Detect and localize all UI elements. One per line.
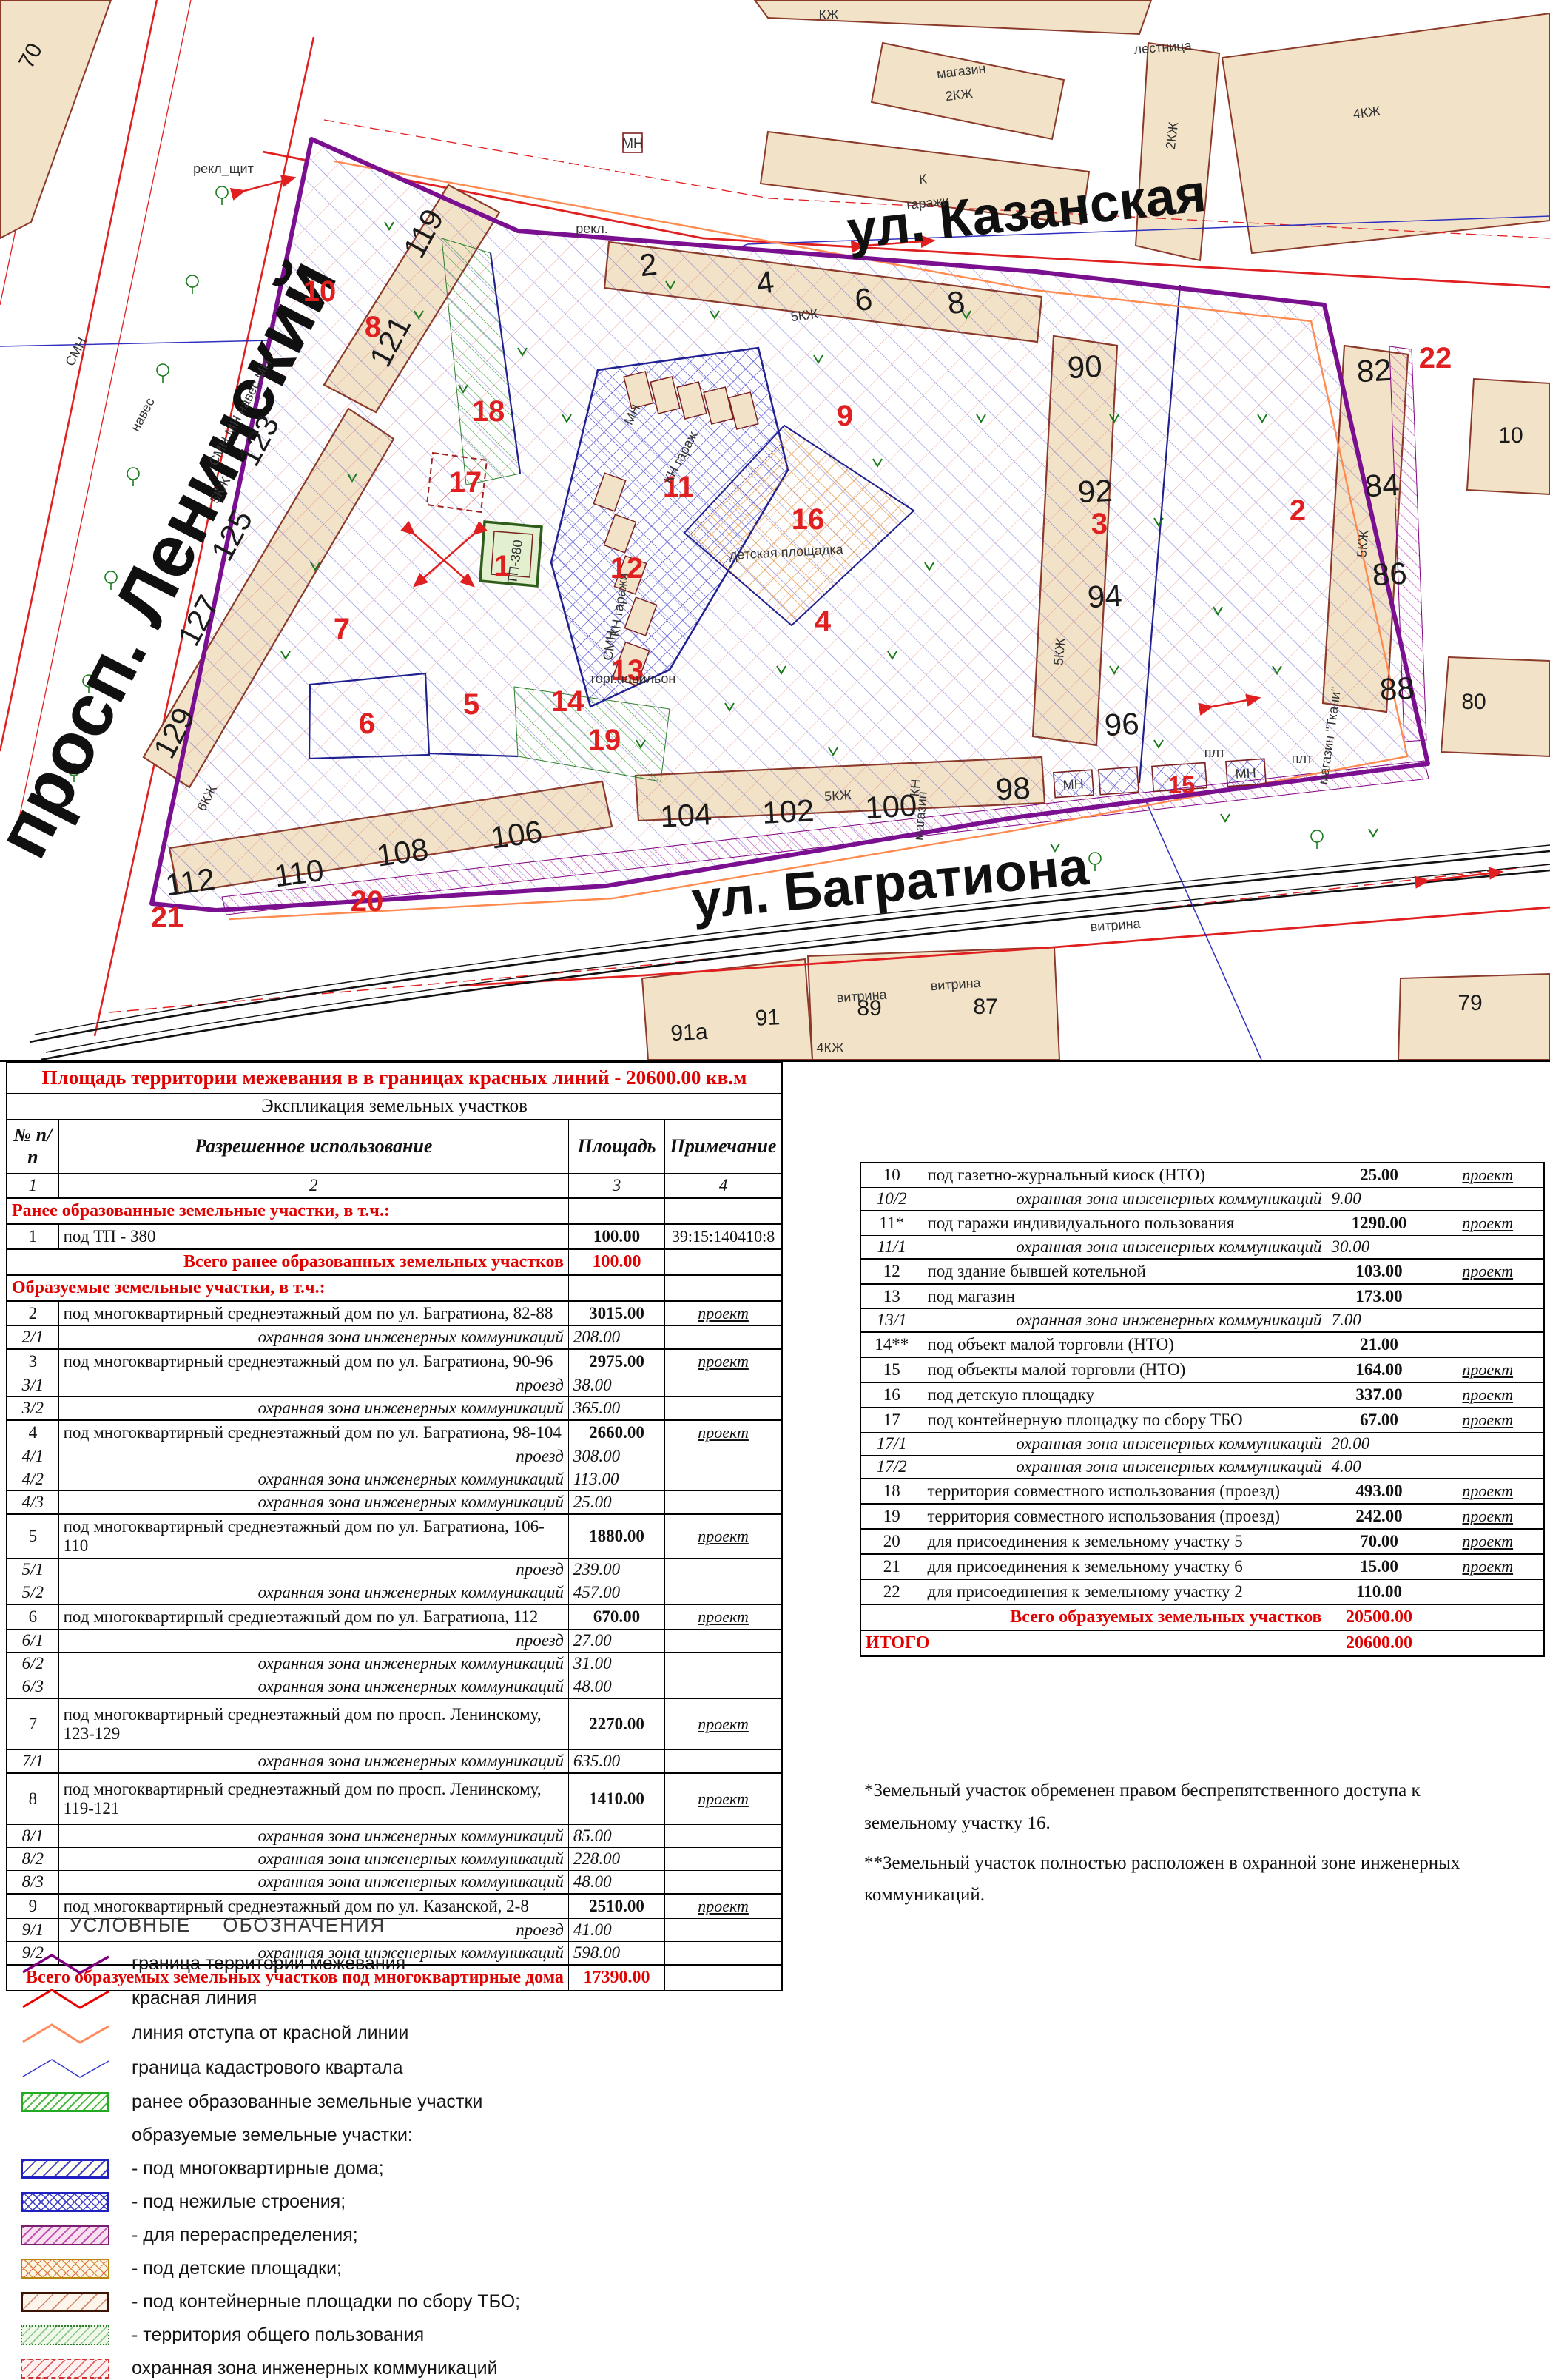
table-row: 19территория совместного использования (… <box>860 1504 1544 1529</box>
table-cell: проезд <box>58 1374 568 1397</box>
table-cell <box>665 1942 782 1966</box>
table-cell: 21 <box>860 1554 923 1579</box>
building-number: 92 <box>1077 473 1113 509</box>
annotation-label: торг.павильон <box>590 671 676 686</box>
table-row: 13/1охранная зона инженерных коммуникаци… <box>860 1309 1544 1333</box>
table-row: 10/2охранная зона инженерных коммуникаци… <box>860 1188 1544 1211</box>
table-cell: проект <box>1432 1259 1544 1284</box>
table-cell: 493.00 <box>1327 1479 1432 1504</box>
table-cell: 1410.00 <box>568 1773 664 1825</box>
table-cell: 10 <box>860 1163 923 1188</box>
table-row: 10под газетно-журнальный киоск (НТО)25.0… <box>860 1163 1544 1188</box>
table-cell: 20.00 <box>1327 1433 1432 1456</box>
table-cell: 20 <box>860 1529 923 1554</box>
table-cell: 19 <box>860 1504 923 1529</box>
table-cell: 38.00 <box>568 1374 664 1397</box>
table-cell <box>665 1653 782 1675</box>
legend-item: охранная зона инженерных коммуникаций <box>21 2356 627 2380</box>
table-cell <box>665 1249 782 1275</box>
parcel-number: 8 <box>365 311 381 343</box>
table-cell: 100.00 <box>568 1224 664 1249</box>
table-cell: охранная зона инженерных коммуникаций <box>58 1750 568 1774</box>
table-cell <box>1432 1332 1544 1357</box>
table-row: 12под здание бывшей котельной103.00проек… <box>860 1259 1544 1284</box>
table-row: 4/3охранная зона инженерных коммуникаций… <box>7 1491 782 1515</box>
table-cell: 11* <box>860 1211 923 1236</box>
table-cell <box>1432 1309 1544 1333</box>
survey-plan-page: { "map": { "streets": { "leninsky": "про… <box>0 0 1550 2380</box>
table-cell: проект <box>665 1420 782 1445</box>
building-number: 84 <box>1364 467 1401 503</box>
table-row: 3/2охранная зона инженерных коммуникаций… <box>7 1397 782 1421</box>
table-cell <box>665 1825 782 1848</box>
footnote: *Земельный участок обременен правом бесп… <box>864 1775 1515 1840</box>
building-number: 91а <box>670 1020 709 1046</box>
parcel-number: 15 <box>1168 771 1196 799</box>
legend-label: - для перераспределения; <box>132 2225 358 2246</box>
annotation-label: СМН <box>62 335 90 368</box>
table-cell: проект <box>1432 1504 1544 1529</box>
table-cell: проект <box>665 1604 782 1630</box>
legend-swatch-commons <box>21 2325 109 2345</box>
parcel-number: 7 <box>334 613 350 645</box>
cadastral-map-svg: просп. Ленинский ул. Казанская ул. Багра… <box>0 0 1550 1060</box>
table-cell: проезд <box>58 1559 568 1581</box>
legend-swatch-nonresidential <box>21 2192 109 2212</box>
table-cell: 2270.00 <box>568 1698 664 1750</box>
parcel-number: 5 <box>463 688 479 721</box>
zigzag-line <box>23 1955 109 1973</box>
legend-item: граница кадастрового квартала <box>21 2054 627 2081</box>
legend: УСЛОВНЫЕ ОБОЗНАЧЕНИЯ граница территории … <box>21 1914 627 2380</box>
table-cell: 8/3 <box>7 1871 58 1895</box>
legend-label: - под контейнерные площадки по сбору ТБО… <box>132 2291 520 2313</box>
table-cell: 4/2 <box>7 1468 58 1491</box>
building-number: 94 <box>1087 578 1123 614</box>
parcel-number: 3 <box>1091 508 1108 540</box>
table-cell: проект <box>1432 1529 1544 1554</box>
table-cell: охранная зона инженерных коммуникаций <box>923 1309 1327 1333</box>
table-row: 2под многоквартирный среднеэтажный дом п… <box>7 1301 782 1326</box>
cadastral-map: просп. Ленинский ул. Казанская ул. Багра… <box>0 0 1550 1062</box>
table-cell: под объекты малой торговли (НТО) <box>923 1357 1327 1382</box>
building-number: 98 <box>995 770 1031 807</box>
table-row: 22для присоединения к земельному участку… <box>860 1579 1544 1604</box>
table-cell: 8/1 <box>7 1825 58 1848</box>
table-cell: 7/1 <box>7 1750 58 1774</box>
building-number: 112 <box>164 861 218 903</box>
annotation-label: 5КЖ <box>824 787 852 804</box>
table-cell: 239.00 <box>568 1559 664 1581</box>
table-cell: 4 <box>7 1420 58 1445</box>
table-cell: 3 <box>7 1349 58 1374</box>
table-cell: 457.00 <box>568 1581 664 1605</box>
annotation-label: плт <box>1292 751 1313 766</box>
table-row: 8/1охранная зона инженерных коммуникаций… <box>7 1825 782 1848</box>
table-cell: охранная зона инженерных коммуникаций <box>923 1188 1327 1211</box>
table-row: 7под многоквартирный среднеэтажный дом п… <box>7 1698 782 1750</box>
annotation-label: МН <box>1235 765 1256 781</box>
zigzag-line <box>23 2025 109 2043</box>
table-cell: для присоединения к земельному участку 2 <box>923 1579 1327 1604</box>
parcel-number: 17 <box>449 466 482 499</box>
legend-item: - под нежилые строения; <box>21 2189 627 2214</box>
table-cell <box>568 1198 664 1224</box>
table-cell <box>1432 1456 1544 1479</box>
legend-label: - под нежилые строения; <box>132 2191 346 2213</box>
right-table-body: 10под газетно-журнальный киоск (НТО)25.0… <box>860 1163 1544 1656</box>
table-cell <box>665 1848 782 1871</box>
table-row: 4/1проезд308.00 <box>7 1445 782 1468</box>
table-title: Площадь территории межевания в в граница… <box>7 1062 782 1094</box>
table-cell: охранная зона инженерных коммуникаций <box>58 1581 568 1605</box>
table-cell: 25.00 <box>568 1491 664 1515</box>
table-cell <box>1432 1604 1544 1630</box>
table-row: 4под многоквартирный среднеэтажный дом п… <box>7 1420 782 1445</box>
table-cell: 9.00 <box>1327 1188 1432 1211</box>
column-number: 1 <box>7 1174 58 1199</box>
table-cell: 67.00 <box>1327 1408 1432 1433</box>
table-row: 7/1охранная зона инженерных коммуникаций… <box>7 1750 782 1774</box>
annotation-label: 4КЖ <box>816 1041 843 1055</box>
table-cell: под многоквартирный среднеэтажный дом по… <box>58 1698 568 1750</box>
table-cell <box>665 1559 782 1581</box>
table-row: 15под объекты малой торговли (НТО)164.00… <box>860 1357 1544 1382</box>
annotation-label: 5КЖ <box>1051 637 1068 666</box>
table-cell: охранная зона инженерных коммуникаций <box>58 1675 568 1699</box>
table-cell: проект <box>665 1894 782 1919</box>
table-cell: проект <box>1432 1408 1544 1433</box>
building-number: 88 <box>1379 670 1415 707</box>
building-number: 106 <box>488 813 545 855</box>
table-row: 11*под гаражи индивидуального пользовани… <box>860 1211 1544 1236</box>
table-cell: 17/2 <box>860 1456 923 1479</box>
table-cell: проезд <box>58 1630 568 1653</box>
table-cell: под многоквартирный среднеэтажный дом по… <box>58 1420 568 1445</box>
parcel-number: 22 <box>1419 342 1452 374</box>
table-cell: 20600.00 <box>1327 1630 1432 1656</box>
table-cell: 8/2 <box>7 1848 58 1871</box>
legend-swatch-utility-zone <box>21 2359 109 2379</box>
table-cell: 337.00 <box>1327 1382 1432 1408</box>
annotation-label: рекл_щит <box>193 161 254 177</box>
table-cell: под здание бывшей котельной <box>923 1259 1327 1284</box>
table-cell: 5 <box>7 1514 58 1559</box>
legend-swatch-playground <box>21 2259 109 2279</box>
table-header-row: № п/п Разрешенное использование Площадь … <box>7 1120 782 1174</box>
table-row: 16под детскую площадку337.00проект <box>860 1382 1544 1408</box>
table-cell <box>665 1919 782 1942</box>
table-cell: 48.00 <box>568 1675 664 1699</box>
legend-label: ранее образованные земельные участки <box>132 2091 482 2113</box>
table-cell <box>665 1275 782 1301</box>
table-cell: 12 <box>860 1259 923 1284</box>
table-row: 8под многоквартирный среднеэтажный дом п… <box>7 1773 782 1825</box>
table-cell: 365.00 <box>568 1397 664 1421</box>
zigzag-line <box>23 2060 109 2077</box>
table-cell <box>1432 1284 1544 1309</box>
table-row: 17/2охранная зона инженерных коммуникаци… <box>860 1456 1544 1479</box>
table-cell: проект <box>1432 1163 1544 1188</box>
table-row: Образуемые земельные участки, в т.ч.: <box>7 1275 782 1301</box>
table-cell: проект <box>665 1514 782 1559</box>
parcel-number: 9 <box>837 400 853 432</box>
table-cell: 208.00 <box>568 1326 664 1350</box>
table-cell: проект <box>665 1698 782 1750</box>
table-subtitle: Экспликация земельных участков <box>7 1094 782 1120</box>
building-number: 90 <box>1067 349 1103 385</box>
annotation-label: плт <box>1204 745 1226 760</box>
table-cell <box>1432 1188 1544 1211</box>
table-row: 2/1охранная зона инженерных коммуникаций… <box>7 1326 782 1350</box>
legend-item: - под контейнерные площадки по сбору ТБО… <box>21 2289 627 2314</box>
table-cell: под гаражи индивидуального пользования <box>923 1211 1327 1236</box>
table-cell: под контейнерную площадку по сбору ТБО <box>923 1408 1327 1433</box>
table-cell <box>665 1965 782 1991</box>
table-cell: Всего образуемых земельных участков <box>860 1604 1327 1630</box>
table-cell: 4/1 <box>7 1445 58 1468</box>
table-cell: охранная зона инженерных коммуникаций <box>923 1456 1327 1479</box>
legend-swatch-redline-zigzag <box>21 1985 132 2011</box>
building-number: 104 <box>659 796 712 834</box>
table-cell <box>665 1750 782 1774</box>
table-cell <box>1432 1236 1544 1260</box>
table-cell: 1880.00 <box>568 1514 664 1559</box>
table-row: 6под многоквартирный среднеэтажный дом п… <box>7 1604 782 1630</box>
table-cell: Ранее образованные земельные участки, в … <box>7 1198 568 1224</box>
table-cell: 1290.00 <box>1327 1211 1432 1236</box>
table-cell: 48.00 <box>568 1871 664 1895</box>
table-cell: 21.00 <box>1327 1332 1432 1357</box>
table-cell: проект <box>1432 1554 1544 1579</box>
table-cell: 228.00 <box>568 1848 664 1871</box>
table-cell: под ТП - 380 <box>58 1224 568 1249</box>
legend-label: линия отступа от красной линии <box>132 2023 408 2044</box>
annotation-label: 5КЖ <box>1354 529 1371 558</box>
building-number: 108 <box>374 831 431 873</box>
table-cell: 164.00 <box>1327 1357 1432 1382</box>
legend-item: граница территории межевания <box>21 1950 627 1977</box>
legend-swatch-apartment <box>21 2159 109 2179</box>
building-number: 110 <box>272 853 326 894</box>
legend-label: образуемые земельные участки: <box>132 2125 413 2146</box>
table-cell: 635.00 <box>568 1750 664 1774</box>
building-number: 96 <box>1104 706 1140 742</box>
parcel-number: 10 <box>303 275 337 308</box>
table-row: 21для присоединения к земельному участку… <box>860 1554 1544 1579</box>
building-number: 80 <box>1461 690 1486 714</box>
zigzag-line <box>23 1990 109 2008</box>
legend-item: - под многоквартирные дома; <box>21 2156 627 2181</box>
table-cell: 100.00 <box>568 1249 664 1275</box>
table-cell: территория совместного использования (пр… <box>923 1479 1327 1504</box>
table-cell <box>568 1275 664 1301</box>
table-row: 5/2охранная зона инженерных коммуникаций… <box>7 1581 782 1605</box>
table-row: Всего ранее образованных земельных участ… <box>7 1249 782 1275</box>
table-cell: 17 <box>860 1408 923 1433</box>
table-row: 20для присоединения к земельному участку… <box>860 1529 1544 1554</box>
table-cell: 20500.00 <box>1327 1604 1432 1630</box>
legend-label: - под многоквартирные дома; <box>132 2158 384 2179</box>
column-header: Разрешенное использование <box>58 1120 568 1174</box>
table-cell <box>1432 1630 1544 1656</box>
table-cell: проект <box>1432 1211 1544 1236</box>
table-row: 11/1охранная зона инженерных коммуникаци… <box>860 1236 1544 1260</box>
table-cell: 6/2 <box>7 1653 58 1675</box>
table-cell: 70.00 <box>1327 1529 1432 1554</box>
legend-swatch-waste-site <box>21 2292 109 2312</box>
building-number: 91 <box>755 1005 781 1031</box>
table-cell: охранная зона инженерных коммуникаций <box>58 1397 568 1421</box>
table-cell: 2660.00 <box>568 1420 664 1445</box>
building-number: 102 <box>761 793 815 830</box>
table-cell <box>665 1445 782 1468</box>
parcel-number: 6 <box>359 707 375 740</box>
legend-title: УСЛОВНЫЕ ОБОЗНАЧЕНИЯ <box>70 1914 627 1937</box>
table-cell <box>1432 1433 1544 1456</box>
table-cell: Всего ранее образованных земельных участ… <box>7 1249 568 1275</box>
table-cell: под многоквартирный среднеэтажный дом по… <box>58 1301 568 1326</box>
explication-table: Площадь территории межевания в в граница… <box>6 1061 783 1991</box>
table-cell: ИТОГО <box>860 1630 1327 1656</box>
footnotes: *Земельный участок обременен правом бесп… <box>864 1775 1515 1919</box>
table-cell: 25.00 <box>1327 1163 1432 1188</box>
table-cell: 13 <box>860 1284 923 1309</box>
table-cell: проект <box>665 1301 782 1326</box>
table-cell: 308.00 <box>568 1445 664 1468</box>
parcel-number: 20 <box>351 885 384 918</box>
table-row: ИТОГО20600.00 <box>860 1630 1544 1656</box>
table-cell <box>665 1374 782 1397</box>
building-number: 79 <box>1458 991 1482 1015</box>
table-cell <box>1432 1579 1544 1604</box>
legend-label: граница кадастрового квартала <box>132 2057 403 2079</box>
legend-label: охранная зона инженерных коммуникаций <box>132 2358 498 2379</box>
table-cell: 30.00 <box>1327 1236 1432 1260</box>
table-cell: охранная зона инженерных коммуникаций <box>923 1236 1327 1260</box>
table-cell: 10/2 <box>860 1188 923 1211</box>
table-cell: 7.00 <box>1327 1309 1432 1333</box>
table-cell: 15.00 <box>1327 1554 1432 1579</box>
column-header: Площадь <box>568 1120 664 1174</box>
table-cell: 173.00 <box>1327 1284 1432 1309</box>
parcel-number: 14 <box>551 685 584 718</box>
table-row: Всего образуемых земельных участков20500… <box>860 1604 1544 1630</box>
footnote: **Земельный участок полностью расположен… <box>864 1847 1515 1912</box>
legend-swatch-redistribution <box>21 2225 109 2245</box>
building-number: 86 <box>1372 556 1408 592</box>
parcel-number: 4 <box>815 605 832 638</box>
legend-swatch-cadastre-zigzag <box>21 2054 132 2081</box>
legend-item: красная линия <box>21 1985 627 2011</box>
table-cell: проект <box>665 1773 782 1825</box>
table-cell: под многоквартирный среднеэтажный дом по… <box>58 1773 568 1825</box>
table-cell <box>665 1198 782 1224</box>
parcel-number: 16 <box>792 503 825 536</box>
legend-item: - для перераспределения; <box>21 2222 627 2248</box>
table-cell: охранная зона инженерных коммуникаций <box>58 1326 568 1350</box>
table-row: 6/3охранная зона инженерных коммуникаций… <box>7 1675 782 1699</box>
table-cell: 8 <box>7 1773 58 1825</box>
table-subtitle-row: Экспликация земельных участков <box>7 1094 782 1120</box>
parcel-number: 21 <box>151 901 184 934</box>
legend-swatch-prior-parcels <box>21 2092 109 2112</box>
table-cell <box>665 1326 782 1350</box>
table-row: 13под магазин173.00 <box>860 1284 1544 1309</box>
table-cell: 85.00 <box>568 1825 664 1848</box>
table-cell: Образуемые земельные участки, в т.ч.: <box>7 1275 568 1301</box>
legend-item: образуемые земельные участки: <box>21 2122 627 2148</box>
table-cell: 16 <box>860 1382 923 1408</box>
table-row: 3под многоквартирный среднеэтажный дом п… <box>7 1349 782 1374</box>
table-row: 6/1проезд27.00 <box>7 1630 782 1653</box>
table-cell: 39:15:140410:8 <box>665 1224 782 1249</box>
table-cell: 17/1 <box>860 1433 923 1456</box>
table-cell: 27.00 <box>568 1630 664 1653</box>
table-cell: под многоквартирный среднеэтажный дом по… <box>58 1514 568 1559</box>
table-cell: 2975.00 <box>568 1349 664 1374</box>
table-cell <box>665 1468 782 1491</box>
parcel-number: 2 <box>1290 494 1306 527</box>
legend-item: линия отступа от красной линии <box>21 2020 627 2046</box>
parcel-number: 18 <box>472 395 505 428</box>
table-cell: 110.00 <box>1327 1579 1432 1604</box>
table-cell: 5/2 <box>7 1581 58 1605</box>
legend-item: ранее образованные земельные участки <box>21 2089 627 2114</box>
table-row: 8/2охранная зона инженерных коммуникаций… <box>7 1848 782 1871</box>
table-cell: 2 <box>7 1301 58 1326</box>
table-cell: 2/1 <box>7 1326 58 1350</box>
column-number: 4 <box>665 1174 782 1199</box>
table-cell: под магазин <box>923 1284 1327 1309</box>
column-header: № п/п <box>7 1120 58 1174</box>
explication-table-continued: 10под газетно-журнальный киоск (НТО)25.0… <box>860 1162 1545 1657</box>
table-cell: 31.00 <box>568 1653 664 1675</box>
table-cell: 670.00 <box>568 1604 664 1630</box>
column-number-row: 1 2 3 4 <box>7 1174 782 1199</box>
table-cell <box>665 1581 782 1605</box>
table-row: 3/1проезд38.00 <box>7 1374 782 1397</box>
table-cell: для присоединения к земельному участку 5 <box>923 1529 1327 1554</box>
table-cell: под многоквартирный среднеэтажный дом по… <box>58 1349 568 1374</box>
table-title-row: Площадь территории межевания в в граница… <box>7 1062 782 1094</box>
table-cell: 1 <box>7 1224 58 1249</box>
annotation-label: КЖ <box>818 7 838 22</box>
annotation-label: витрина <box>1090 916 1142 935</box>
table-cell: проект <box>1432 1479 1544 1504</box>
table-row: Ранее образованные земельные участки, в … <box>7 1198 782 1224</box>
legend-label: - территория общего пользования <box>132 2324 424 2346</box>
table-cell: 4.00 <box>1327 1456 1432 1479</box>
table-cell: 3015.00 <box>568 1301 664 1326</box>
annotation-label: МН <box>1062 776 1084 792</box>
table-cell: 13/1 <box>860 1309 923 1333</box>
table-cell <box>665 1675 782 1699</box>
table-cell: 113.00 <box>568 1468 664 1491</box>
table-cell <box>665 1871 782 1895</box>
building-number: 87 <box>973 995 997 1019</box>
table-cell: 6 <box>7 1604 58 1630</box>
legend-swatch-boundary-zigzag <box>21 1950 132 1977</box>
table-cell: охранная зона инженерных коммуникаций <box>58 1825 568 1848</box>
table-cell: под газетно-журнальный киоск (НТО) <box>923 1163 1327 1188</box>
table-cell: охранная зона инженерных коммуникаций <box>58 1871 568 1895</box>
table-cell: 15 <box>860 1357 923 1382</box>
left-table-body: Ранее образованные земельные участки, в … <box>7 1198 782 1991</box>
table-cell: 11/1 <box>860 1236 923 1260</box>
table-cell: 242.00 <box>1327 1504 1432 1529</box>
legend-label: - под детские площадки; <box>132 2258 342 2279</box>
